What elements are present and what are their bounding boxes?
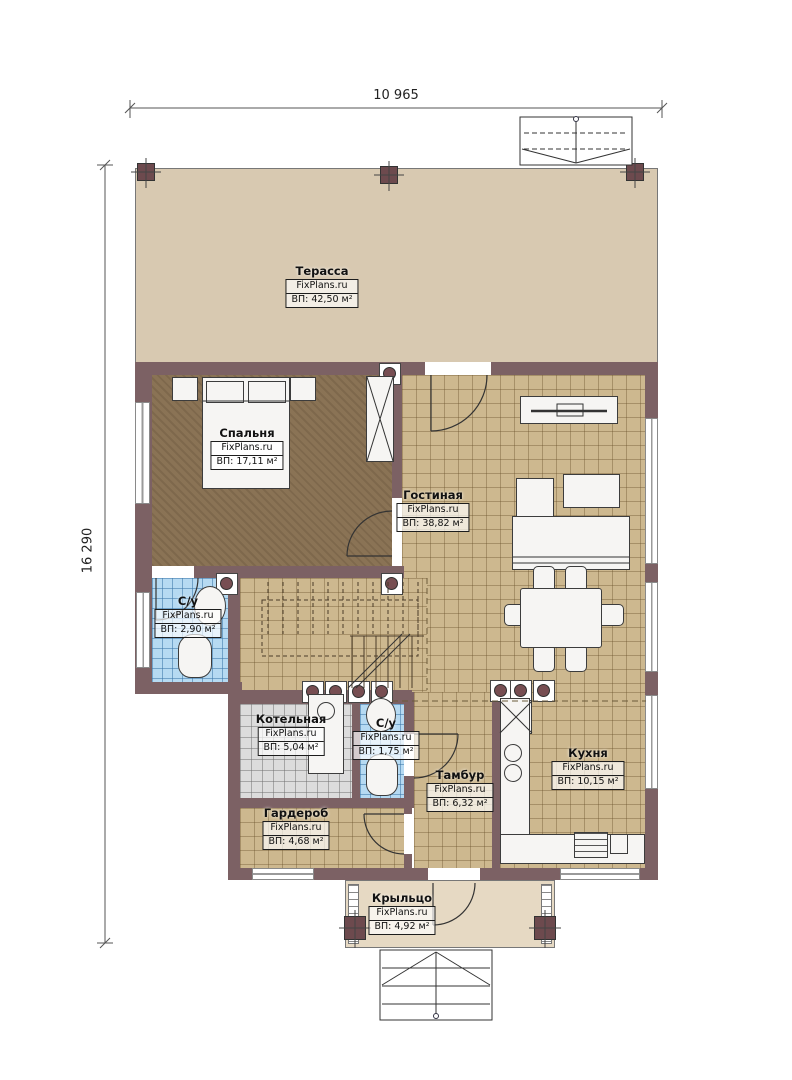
room-area: ВП: 2,90 м² <box>155 624 220 637</box>
wall-segment <box>228 692 240 880</box>
room-info-box: FixPlans.ru ВП: 10,15 м² <box>551 761 624 790</box>
room-name: Терасса <box>285 264 358 278</box>
room-watermark: FixPlans.ru <box>286 280 357 294</box>
room-info-box: FixPlans.ru ВП: 5,04 м² <box>257 727 324 756</box>
floor-plan: Терасса FixPlans.ru ВП: 42,50 м² Спальня… <box>0 0 792 1080</box>
column <box>348 681 370 703</box>
room-info-box: FixPlans.ru ВП: 17,11 м² <box>210 441 283 470</box>
room-watermark: FixPlans.ru <box>258 728 323 742</box>
column <box>381 573 403 595</box>
terrace-post <box>626 163 644 181</box>
pillow <box>206 381 244 403</box>
column-icon <box>352 685 365 698</box>
room-info-box: FixPlans.ru ВП: 2,90 м² <box>154 609 221 638</box>
room-area: ВП: 42,50 м² <box>286 294 357 307</box>
room-info-box: FixPlans.ru ВП: 38,82 м² <box>396 503 469 532</box>
nightstand <box>172 377 198 401</box>
wall-segment <box>404 854 412 868</box>
room-label-terrace: Терасса FixPlans.ru ВП: 42,50 м² <box>285 264 358 308</box>
window <box>252 868 314 880</box>
window <box>560 868 640 880</box>
door-opening <box>425 362 491 375</box>
room-label-tambour: Тамбур FixPlans.ru ВП: 6,32 м² <box>426 768 493 812</box>
room-name: С/у <box>352 716 419 730</box>
room-watermark: FixPlans.ru <box>369 907 434 921</box>
room-label-living: Гостиная FixPlans.ru ВП: 38,82 м² <box>396 488 469 532</box>
room-name: С/у <box>154 594 221 608</box>
wall-segment <box>491 362 658 375</box>
room-label-wc-2: С/у FixPlans.ru ВП: 1,75 м² <box>352 716 419 760</box>
room-name: Кухня <box>551 746 624 760</box>
window <box>136 592 150 668</box>
room-name: Спальня <box>210 426 283 440</box>
wall-segment <box>404 808 412 814</box>
side-table <box>563 474 620 508</box>
dimension-height: 16 290 <box>81 511 96 591</box>
wall-segment <box>135 682 242 694</box>
terrace-post <box>137 163 155 181</box>
room-watermark: FixPlans.ru <box>427 784 492 798</box>
nightstand <box>290 377 316 401</box>
room-name: Гостиная <box>396 488 469 502</box>
stair-hall-floor <box>240 578 427 692</box>
room-watermark: FixPlans.ru <box>155 610 220 624</box>
room-watermark: FixPlans.ru <box>353 732 418 746</box>
room-info-box: FixPlans.ru ВП: 1,75 м² <box>352 731 419 760</box>
terrace-post <box>380 166 398 184</box>
toilet-icon <box>366 754 398 796</box>
oven-icon <box>610 834 628 854</box>
porch-post <box>344 916 366 940</box>
window <box>135 402 150 504</box>
room-watermark: FixPlans.ru <box>552 762 623 776</box>
terrace-floor <box>135 168 658 363</box>
window <box>645 418 658 564</box>
room-info-box: FixPlans.ru ВП: 4,68 м² <box>262 821 329 850</box>
toilet-icon <box>178 634 212 678</box>
kitchen-sink-icon <box>504 744 522 762</box>
dining-chair <box>533 644 555 672</box>
column-icon <box>220 577 233 590</box>
door-opening <box>152 566 194 578</box>
room-area: ВП: 4,68 м² <box>263 836 328 849</box>
column <box>533 680 555 702</box>
room-watermark: FixPlans.ru <box>211 442 282 456</box>
column-icon <box>494 684 507 697</box>
room-label-porch: Крыльцо FixPlans.ru ВП: 4,92 м² <box>368 891 435 935</box>
room-watermark: FixPlans.ru <box>397 504 468 518</box>
room-area: ВП: 6,32 м² <box>427 798 492 811</box>
vent-shaft <box>366 376 394 462</box>
room-label-bedroom: Спальня FixPlans.ru ВП: 17,11 м² <box>210 426 283 470</box>
kitchen-sink-icon <box>504 764 522 782</box>
room-watermark: FixPlans.ru <box>263 822 328 836</box>
room-area: ВП: 5,04 м² <box>258 742 323 755</box>
column-icon <box>537 684 550 697</box>
dimension-width: 10 965 <box>373 88 419 103</box>
room-area: ВП: 17,11 м² <box>211 456 282 469</box>
wall-segment <box>404 776 414 800</box>
room-label-kitchen: Кухня FixPlans.ru ВП: 10,15 м² <box>551 746 624 790</box>
room-label-wardrobe: Гардероб FixPlans.ru ВП: 4,68 м² <box>262 806 329 850</box>
column-icon <box>375 685 388 698</box>
room-info-box: FixPlans.ru ВП: 4,92 м² <box>368 906 435 935</box>
window <box>645 695 658 789</box>
room-info-box: FixPlans.ru ВП: 42,50 м² <box>285 279 358 308</box>
room-label-boiler: Котельная FixPlans.ru ВП: 5,04 м² <box>256 712 327 756</box>
room-area: ВП: 38,82 м² <box>397 518 468 531</box>
sofa <box>512 516 630 570</box>
room-name: Котельная <box>256 712 327 726</box>
door-opening <box>428 868 480 880</box>
room-name: Тамбур <box>426 768 493 782</box>
room-info-box: FixPlans.ru ВП: 6,32 м² <box>426 783 493 812</box>
dining-chair <box>565 644 587 672</box>
room-name: Крыльцо <box>368 891 435 905</box>
tv-console <box>520 396 618 424</box>
column-icon <box>514 684 527 697</box>
column-icon <box>385 577 398 590</box>
dining-table <box>520 588 602 648</box>
stove-icon <box>574 832 608 858</box>
room-label-wc-1: С/у FixPlans.ru ВП: 2,90 м² <box>154 594 221 638</box>
window <box>645 582 658 672</box>
room-area: ВП: 4,92 м² <box>369 921 434 934</box>
pillow <box>248 381 286 403</box>
room-name: Гардероб <box>262 806 329 820</box>
room-area: ВП: 1,75 м² <box>353 746 418 759</box>
room-area: ВП: 10,15 м² <box>552 776 623 789</box>
porch-post <box>534 916 556 940</box>
